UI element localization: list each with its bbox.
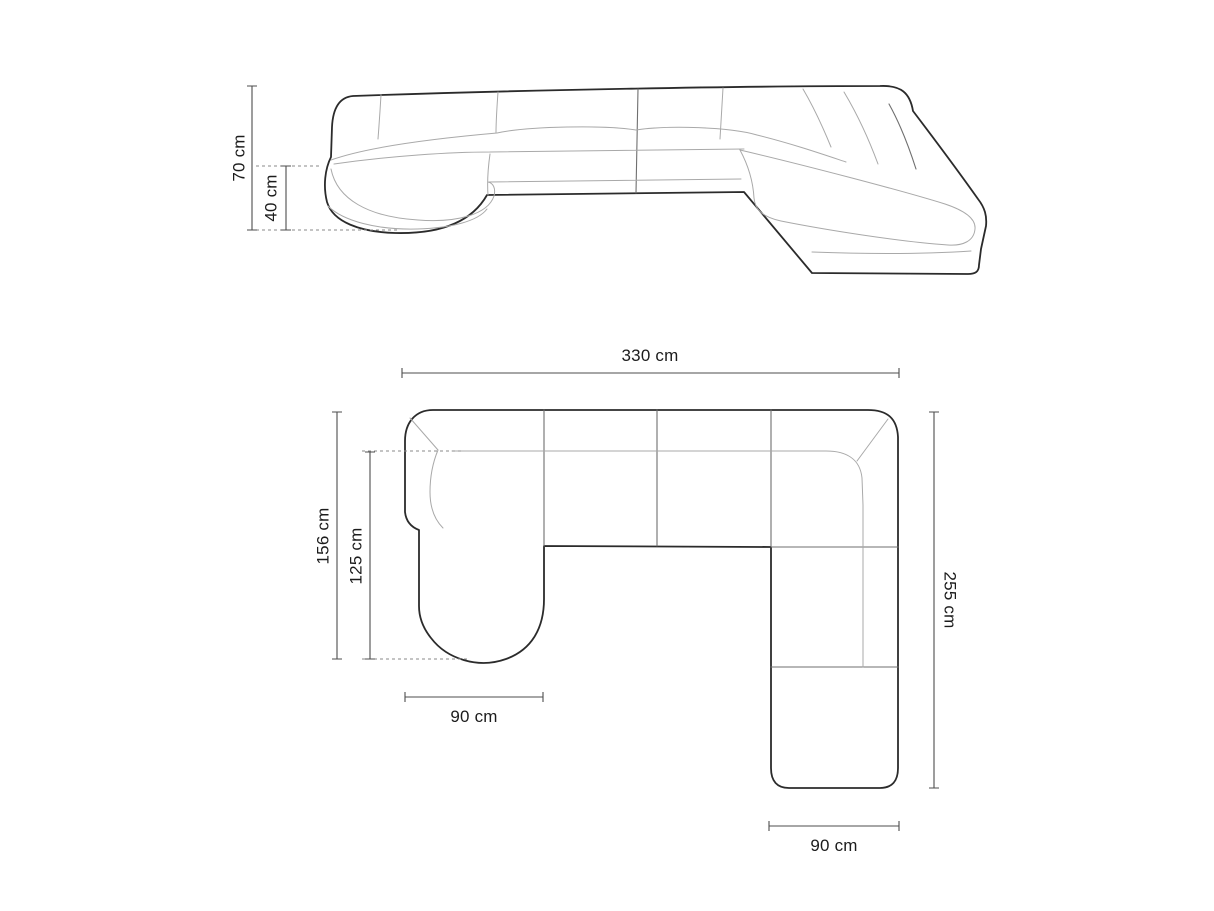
front-view-drawing: 70 cm 40 cm (229, 86, 986, 274)
plan-right-depth-label: 255 cm (941, 572, 960, 629)
plan-chaise-depth-dimension: 125 cm (346, 452, 375, 659)
plan-end-width-dimension: 90 cm (769, 821, 899, 855)
plan-chaise-width-dimension: 90 cm (405, 692, 543, 726)
plan-sofa-outline (405, 410, 898, 788)
plan-end-width-label: 90 cm (810, 836, 857, 855)
front-seat-height-label: 40 cm (261, 174, 280, 221)
plan-right-depth-dimension: 255 cm (929, 412, 960, 788)
plan-width-label: 330 cm (622, 346, 679, 365)
plan-chaise-depth-label: 125 cm (346, 528, 365, 585)
front-seat-height-dimension: 40 cm (261, 166, 291, 230)
plan-left-depth-dimension: 156 cm (313, 412, 342, 659)
plan-width-dimension: 330 cm (402, 346, 899, 378)
front-height-dimension: 70 cm (229, 86, 257, 230)
plan-chaise-width-label: 90 cm (450, 707, 497, 726)
sofa-dimension-diagram: 70 cm 40 cm 330 cm 156 cm 125 c (0, 0, 1214, 911)
front-height-label: 70 cm (229, 134, 248, 181)
diagram-svg: 70 cm 40 cm 330 cm 156 cm 125 c (0, 0, 1214, 911)
plan-left-depth-label: 156 cm (313, 508, 332, 565)
top-view-drawing: 330 cm 156 cm 125 cm 90 cm 255 cm 90 cm (313, 346, 959, 855)
